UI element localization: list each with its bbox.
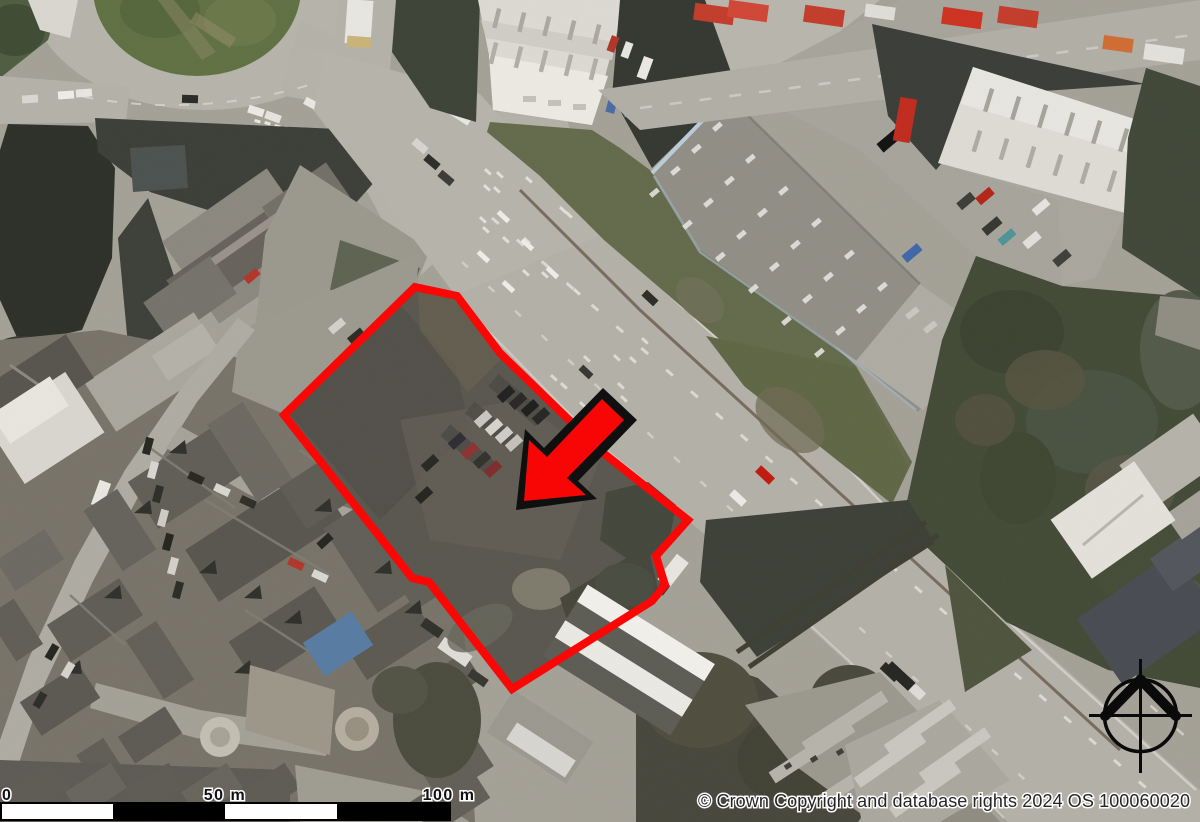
svg-text:50 m: 50 m xyxy=(204,787,246,804)
svg-text:0: 0 xyxy=(2,787,12,804)
svg-text:© Crown Copyright and database: © Crown Copyright and database rights 20… xyxy=(698,791,1190,811)
svg-text:100 m: 100 m xyxy=(423,787,476,804)
